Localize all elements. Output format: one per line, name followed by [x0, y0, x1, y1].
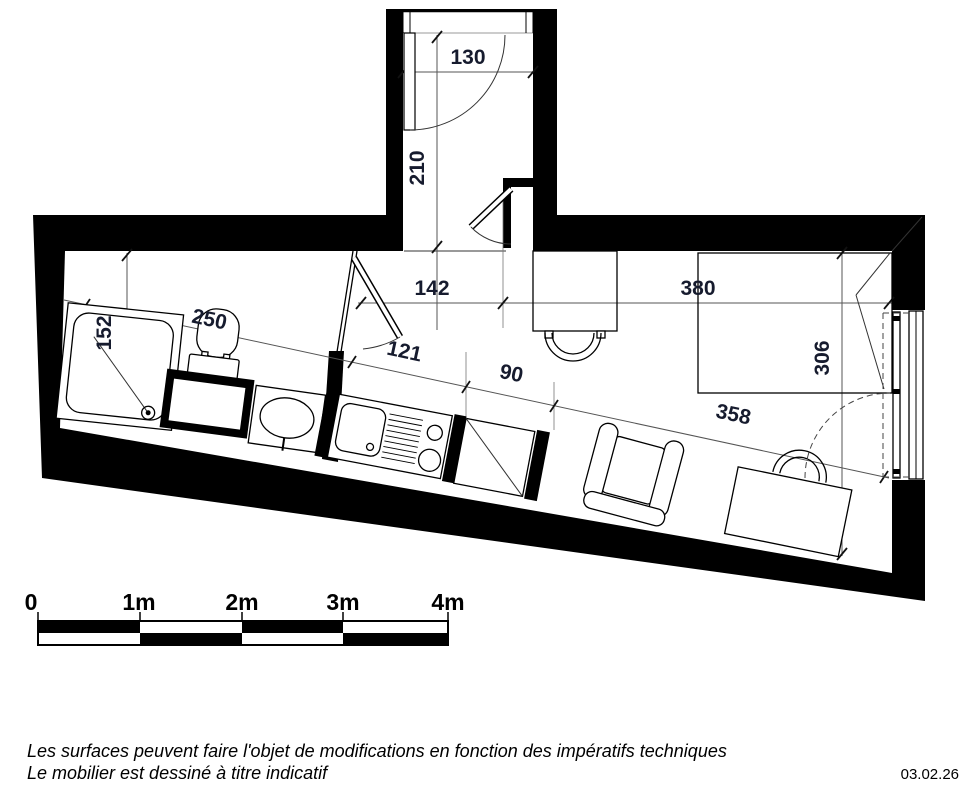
scale-seg-bottom-2	[343, 633, 448, 645]
window-hinge-top	[893, 316, 900, 321]
dim-entry-door-width: 130	[450, 46, 485, 69]
scale-label-4m: 4m	[431, 589, 464, 615]
footer: Les surfaces peuvent faire l'objet de mo…	[27, 741, 959, 783]
scale-label-0: 0	[25, 589, 38, 615]
scale-seg-top-2	[242, 621, 343, 633]
floor-plan-drawing: 130 210 142 380 152 306 250 121 90 358 0…	[0, 0, 971, 800]
dim-main-room-depth: 306	[811, 340, 834, 375]
plan-date: 03.02.26	[901, 766, 959, 783]
scale-seg-top-1	[38, 621, 140, 633]
dim-bathroom-depth: 152	[93, 315, 116, 350]
window-inner-frame	[893, 312, 900, 478]
note-line-1: Les surfaces peuvent faire l'objet de mo…	[27, 741, 727, 761]
closet-top-wall	[503, 178, 533, 187]
dim-main-room-width: 380	[680, 277, 715, 300]
dim-hall-width: 142	[414, 277, 449, 300]
washbasin	[248, 385, 326, 455]
window-hinge-bottom	[893, 469, 900, 474]
closet-floor	[511, 187, 533, 245]
note-line-2: Le mobilier est dessiné à titre indicati…	[27, 763, 329, 783]
storage-unit	[160, 369, 255, 439]
window-hinge-mid	[893, 389, 900, 394]
floor-plan-page: 130 210 142 380 152 306 250 121 90 358 0…	[0, 0, 971, 800]
dim-entry-hall-depth: 210	[406, 150, 429, 185]
entry-door-leaf	[404, 33, 415, 130]
scale-label-3m: 3m	[326, 589, 359, 615]
dim-kitchen-length: 90	[498, 360, 526, 387]
scale-bar: 0 1m 2m 3m 4m	[25, 589, 465, 645]
scale-label-1m: 1m	[122, 589, 155, 615]
scale-seg-bottom-1	[140, 633, 242, 645]
scale-label-2m: 2m	[225, 589, 258, 615]
